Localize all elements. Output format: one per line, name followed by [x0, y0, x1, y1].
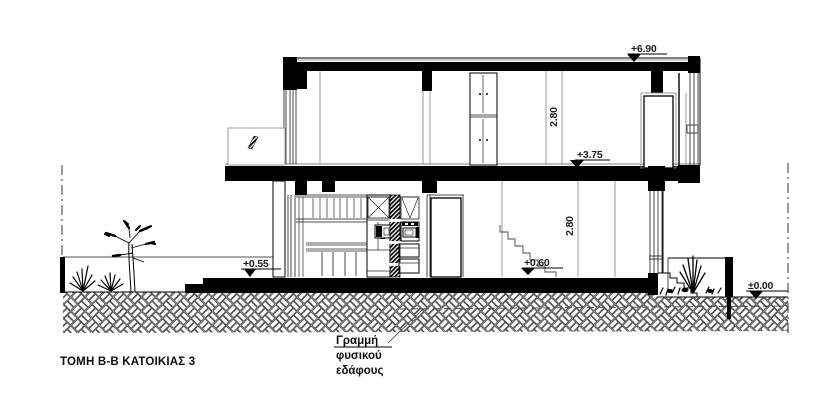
right-wall-footing — [648, 273, 658, 295]
kitchen-units — [367, 195, 419, 277]
tree — [105, 221, 155, 292]
section-drawing-canvas: +6.90 +3.75 +0.55 +0.60 ±0.00 2.80 2.80 … — [0, 0, 821, 411]
beam-stub — [295, 181, 307, 195]
natural-ground-label-line1: Γραμμή — [336, 335, 378, 347]
beam-stub — [322, 181, 335, 192]
door-lintel-stub — [651, 71, 663, 93]
level-value-first-floor: +3.75 — [577, 149, 603, 161]
drawing-sheet: +6.90 +3.75 +0.55 +0.60 ±0.00 2.80 2.80 … — [0, 0, 821, 411]
floor-slab — [225, 164, 700, 183]
cabinet-v-door — [401, 197, 419, 219]
planter-wall-footing — [727, 297, 731, 319]
balcony-box — [228, 128, 285, 165]
upper-floor — [228, 58, 700, 168]
wardrobe-closet — [470, 73, 497, 165]
site-ground — [63, 257, 788, 333]
roof-left-edge-block — [283, 57, 297, 90]
room-height-upper: 2.80 — [548, 107, 560, 127]
closet-handle — [486, 93, 488, 95]
level-triangle-icon — [521, 268, 535, 275]
upper-right-door — [641, 93, 676, 168]
drawing-title: ΤΟΜΗ Β-Β ΚΑΤΟΙΚΙΑΣ 3 — [60, 356, 195, 368]
planter-wall — [725, 257, 733, 297]
natural-ground-label-line2: φυσικού — [336, 350, 382, 362]
earth-hatch — [63, 292, 788, 333]
ground-interior-lines — [502, 181, 615, 277]
level-marker-datum: ±0.00 — [746, 280, 788, 299]
bush — [98, 273, 123, 291]
beam-stub — [422, 181, 437, 193]
bush — [70, 266, 95, 291]
roof-right-parapet — [688, 56, 700, 73]
level-value-terrace: +0.55 — [243, 258, 269, 270]
closet-handle — [486, 139, 488, 141]
kitchen-drawers — [399, 244, 419, 273]
closet-handle — [479, 93, 481, 95]
foundation-slab — [185, 273, 658, 295]
window-transom — [687, 125, 698, 133]
window-head-block — [648, 166, 665, 191]
room-height-lower: 2.80 — [564, 216, 576, 236]
closet-handle — [479, 139, 481, 141]
natural-ground-label-line3: εδάφους — [336, 365, 383, 377]
ground-left-wall — [273, 181, 295, 277]
level-value-roof: +6.90 — [631, 43, 657, 55]
level-value-datum: ±0.00 — [748, 280, 774, 292]
level-marker-first-floor: +3.75 — [570, 149, 610, 168]
slab-right-end-block — [678, 165, 700, 183]
cooktop-oven — [401, 222, 419, 241]
upper-interior-lines — [320, 71, 562, 164]
built-in-microwave — [375, 225, 391, 238]
ground-right-wall — [648, 166, 665, 273]
level-marker-ground-floor: +0.60 — [521, 257, 563, 275]
upper-left-window — [284, 90, 296, 164]
stair-railing — [296, 195, 368, 277]
ground-floor-door — [427, 195, 464, 277]
column-stub — [422, 71, 432, 91]
property-boundary-left — [60, 165, 65, 293]
boundary-wall-left — [60, 257, 65, 293]
level-triangle-icon — [244, 269, 256, 277]
beam-stub — [295, 71, 307, 89]
level-marker-roof: +6.90 — [627, 43, 667, 62]
level-value-ground-floor: +0.60 — [524, 257, 550, 269]
upper-right-window — [679, 58, 700, 165]
